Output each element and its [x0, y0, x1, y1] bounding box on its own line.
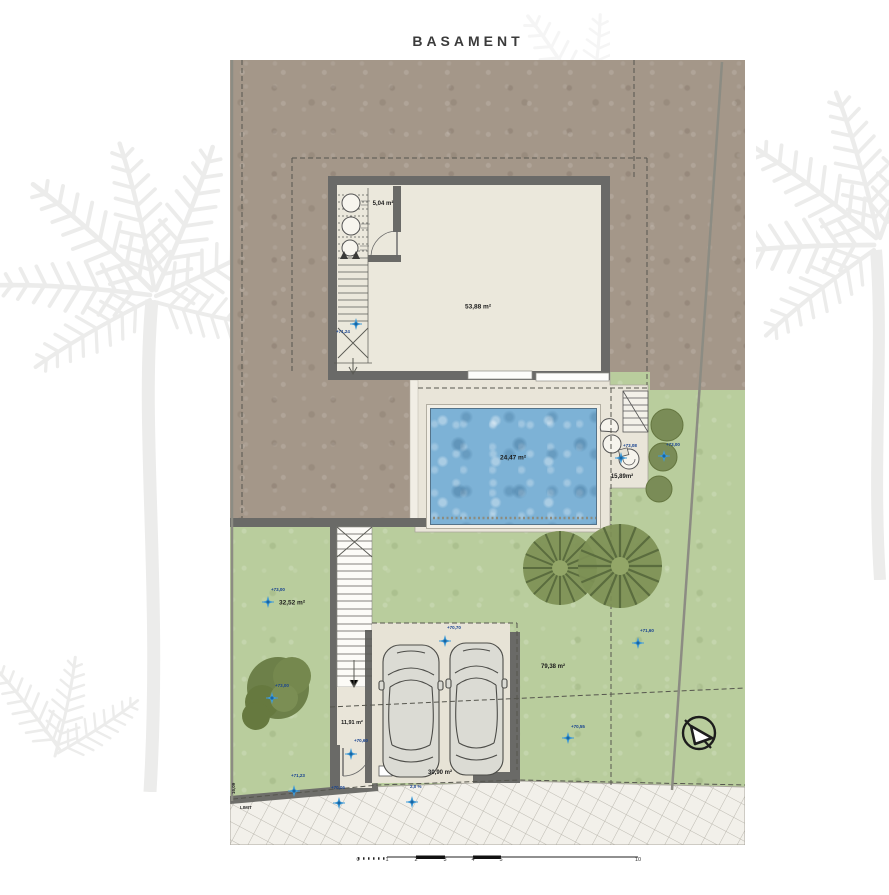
car-right [446, 643, 507, 775]
page-title: BASAMENT [330, 33, 606, 49]
elevation-marker: +73,08 [615, 451, 627, 463]
palm-tree-2 [578, 524, 662, 608]
floor-plan-page: BASAMENT [0, 0, 889, 895]
scale-tick-label: 10 [635, 857, 641, 863]
slope-marker: 2,0 % [406, 795, 418, 807]
elevation-marker: +70,55 [562, 731, 574, 743]
scale-tick-label: 0 [356, 857, 359, 863]
boundary-limit-label: LIMIT [240, 805, 252, 810]
garden-wall [230, 518, 426, 527]
divider-wall [393, 186, 401, 232]
entry-room-area-label: 11,91 m² [341, 720, 363, 726]
outdoor-shower [600, 419, 618, 432]
elevation-marker: +70,60 [345, 747, 357, 759]
window-strip-2 [536, 373, 609, 381]
elevation-marker: +73,00 [262, 595, 274, 607]
window-strip-1 [468, 371, 532, 379]
main-room-area-label: 53,88 m² [465, 304, 491, 311]
garden-left-area-label: 32,52 m² [279, 600, 305, 607]
terrace-area-label: 15,89m² [611, 474, 633, 480]
scale-tick-label: 3 [443, 857, 446, 863]
scale-tick-label: 5 [499, 857, 502, 863]
elevation-marker: +71,23 [288, 784, 300, 796]
scale-tick-label: 1 [385, 857, 388, 863]
north-arrow-icon [683, 717, 715, 749]
site-plan: 5,04 m² 53,88 m² 24,47 m² 15,89m² 32,52 … [230, 60, 745, 845]
palm-watermark-left [0, 50, 252, 792]
carport-area-label: 30,90 m² [428, 770, 452, 776]
elevation-marker: +71,60 [632, 636, 644, 648]
plant-room-door [371, 231, 397, 257]
palm-watermark-right [756, 20, 889, 580]
divider-wall-stub [368, 255, 401, 262]
elevation-marker: +70,06 [333, 796, 345, 808]
elevation-marker: +73,00 [266, 691, 278, 703]
interior-stair [334, 188, 372, 374]
scale-bar: 0 1 2 3 4 5 10 [355, 849, 647, 867]
car-left [379, 645, 443, 777]
terrace-stair [623, 391, 648, 432]
scale-tick-label: 2 [414, 857, 417, 863]
scale-tick-label: 4 [471, 857, 474, 863]
elevation-marker: +70,70 [439, 634, 451, 646]
boundary-dimension: 16,09 [231, 783, 236, 794]
garden-right-area-label: 79,38 m² [541, 664, 565, 670]
carport-right-wall [510, 632, 520, 783]
elevation-marker: +73,00 [658, 449, 670, 461]
water-tanks [342, 194, 370, 256]
elevation-marker: +71,24 [350, 317, 362, 329]
pool-area-label: 24,47 m² [500, 455, 526, 462]
entry-wall-stub [330, 745, 340, 790]
small-room-area-label: 5,04 m² [373, 201, 394, 207]
